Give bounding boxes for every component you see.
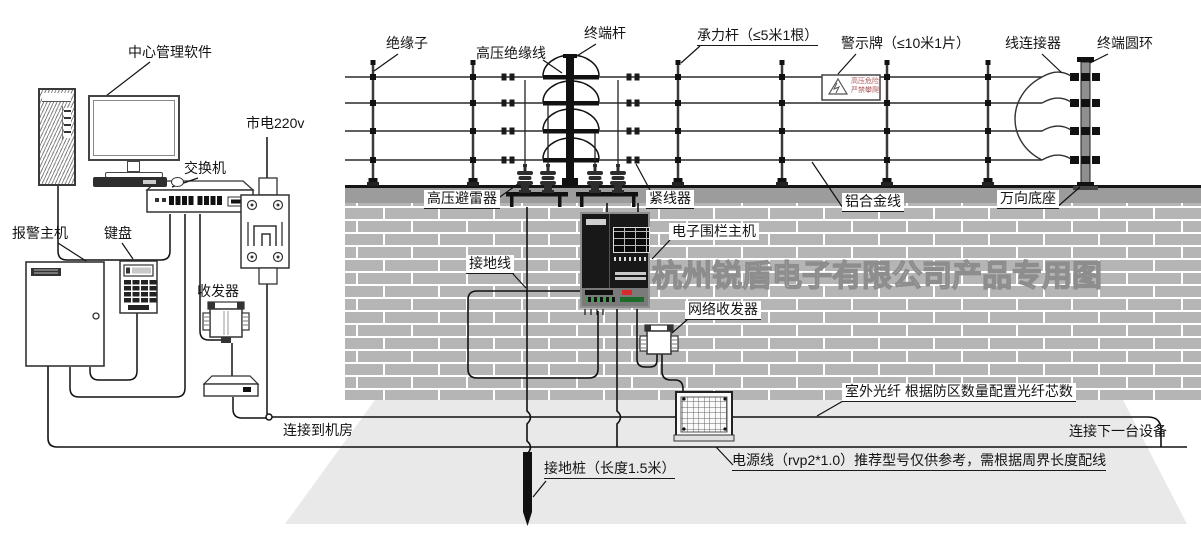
label-center-software: 中心管理软件 (128, 44, 212, 61)
wire-connector-arcs (1015, 72, 1071, 160)
host-terminal-panel (582, 288, 648, 306)
label-terminal-pole: 终端杆 (584, 25, 626, 42)
alarm-host-box (26, 262, 104, 366)
host-red-button (622, 290, 632, 295)
mouse (171, 177, 184, 187)
fence-wires (345, 77, 1042, 160)
label-wire-connector: 线连接器 (1005, 35, 1061, 52)
fence-posts (367, 60, 994, 186)
host-logo (586, 219, 606, 225)
label-outdoor-fiber: 室外光纤 根据防区数量配置光纤芯数 (842, 383, 1076, 402)
label-alarm-host: 报警主机 (12, 225, 68, 242)
label-ground-stake: 接地桩（长度1.5米） (544, 460, 675, 479)
fiber-converter (204, 376, 258, 396)
bus-node (266, 414, 272, 420)
label-fence-host: 电子围栏主机 (669, 223, 759, 240)
label-hv-arrester: 高压避雷器 (424, 190, 500, 209)
junction-box (674, 392, 734, 441)
host-display (613, 227, 650, 253)
label-transceiver: 收发器 (197, 283, 239, 300)
terminal-pole (525, 54, 618, 186)
label-warning-sign: 警示牌（≤10米1片） (841, 35, 970, 52)
monitor-stand (127, 161, 140, 172)
keypad-device (120, 261, 157, 313)
host-indicator-row (614, 257, 647, 261)
label-switch: 交换机 (184, 160, 226, 177)
computer-tower (38, 88, 76, 186)
warning-sign-text-line2: 严禁攀爬 (851, 87, 879, 95)
label-keypad: 键盘 (104, 225, 132, 242)
label-to-machine-room: 连接到机房 (283, 422, 353, 439)
label-hv-cable: 高压绝缘线 (476, 45, 546, 62)
monitor (88, 95, 180, 161)
label-load-pole: 承力杆（≤5米1根） (697, 27, 818, 46)
label-power-line: 电源线（rvp2*1.0）推荐型号仅供参考，需根据周界长度配线 (732, 452, 1106, 471)
label-aluminum-wire: 铝合金线 (842, 193, 904, 212)
warning-sign-text-line1: 高压危险 (851, 78, 879, 86)
keyboard (93, 177, 167, 187)
label-to-next-device: 连接下一台设备 (1069, 423, 1167, 440)
label-ground-wire: 接地线 (466, 255, 514, 274)
ground-stake (523, 452, 532, 526)
label-network-transceiver: 网络收发器 (685, 301, 761, 320)
terminal-post (1070, 57, 1100, 190)
network-transceiver-device (640, 325, 678, 354)
diagram-stage: 高压危险 严禁攀爬 杭州锐盾电子有限公司产品专用图 中心管理软件 市电220v … (0, 0, 1201, 551)
tower-buttons (62, 106, 72, 140)
monitor-screen (93, 100, 175, 156)
label-universal-base: 万向底座 (997, 190, 1059, 209)
transceiver-device (203, 302, 249, 343)
label-terminal-ring: 终端圆环 (1097, 35, 1153, 52)
label-mains-220v: 市电220v (246, 115, 304, 132)
label-insulator: 绝缘子 (386, 35, 428, 52)
label-tensioner: 紧线器 (646, 190, 694, 209)
watermark-text: 杭州锐盾电子有限公司产品专用图 (652, 251, 1102, 295)
tower-drive-bay (42, 93, 71, 102)
fence-host-device (580, 212, 650, 308)
